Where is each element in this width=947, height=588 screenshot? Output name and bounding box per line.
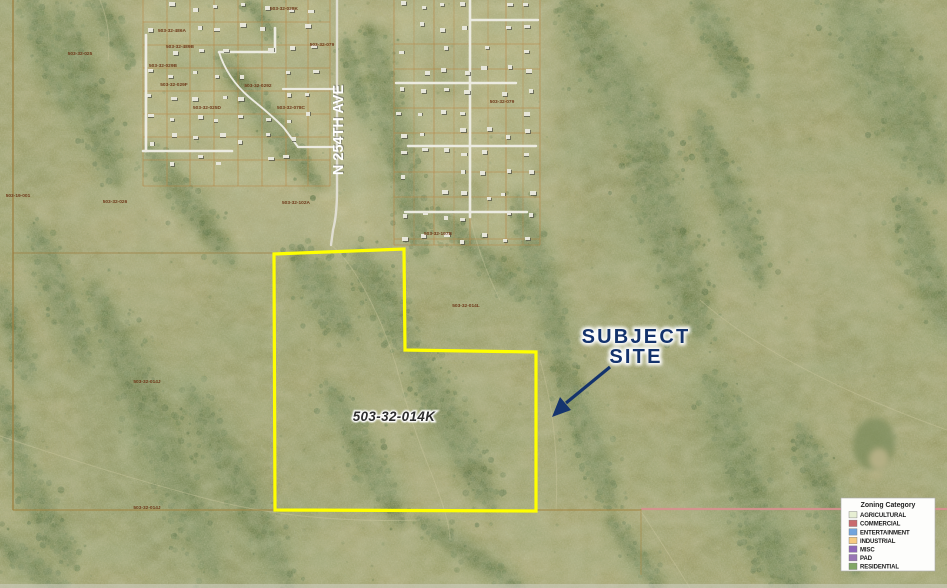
svg-text:503-32-014L: 503-32-014L — [452, 303, 480, 309]
svg-text:503-32-078C: 503-32-078C — [277, 105, 306, 111]
svg-text:AGRICULTURAL: AGRICULTURAL — [860, 513, 906, 519]
svg-text:503-32-029F: 503-32-029F — [160, 82, 188, 88]
svg-text:503-32-197B: 503-32-197B — [424, 231, 453, 237]
svg-text:Zoning Category: Zoning Category — [861, 502, 916, 509]
svg-text:503-32-014J: 503-32-014J — [133, 505, 161, 511]
svg-text:503-32-486A: 503-32-486A — [158, 28, 187, 34]
svg-text:RESIDENTIAL: RESIDENTIAL — [860, 565, 899, 571]
svg-text:503-32-079: 503-32-079 — [490, 99, 515, 105]
svg-text:503-32-014J: 503-32-014J — [133, 379, 161, 385]
svg-text:SITE: SITE — [609, 346, 662, 368]
svg-text:503-32-026: 503-32-026 — [103, 199, 128, 205]
svg-text:MISC: MISC — [860, 548, 875, 554]
svg-text:503-32-079: 503-32-079 — [310, 42, 335, 48]
svg-text:PAD: PAD — [860, 556, 873, 562]
svg-text:503-32-014K: 503-32-014K — [353, 409, 436, 424]
svg-text:503-32-102A: 503-32-102A — [282, 200, 311, 206]
svg-text:503-32-025D: 503-32-025D — [193, 105, 222, 111]
svg-text:INDUSTRIAL: INDUSTRIAL — [860, 539, 896, 545]
svg-text:503-32-029B: 503-32-029B — [149, 63, 178, 69]
svg-text:503-32-025: 503-32-025 — [68, 51, 93, 57]
svg-text:503-32-0292: 503-32-0292 — [244, 83, 272, 89]
svg-text:SUBJECT: SUBJECT — [582, 326, 691, 348]
svg-text:N 254TH AVE: N 254TH AVE — [331, 85, 347, 176]
svg-text:503-19-001: 503-19-001 — [6, 193, 31, 199]
svg-text:COMMERCIAL: COMMERCIAL — [860, 522, 901, 528]
svg-text:503-32-489B: 503-32-489B — [166, 44, 195, 50]
svg-text:503-32-028K: 503-32-028K — [270, 6, 299, 12]
svg-text:ENTERTAINMENT: ENTERTAINMENT — [860, 530, 910, 536]
